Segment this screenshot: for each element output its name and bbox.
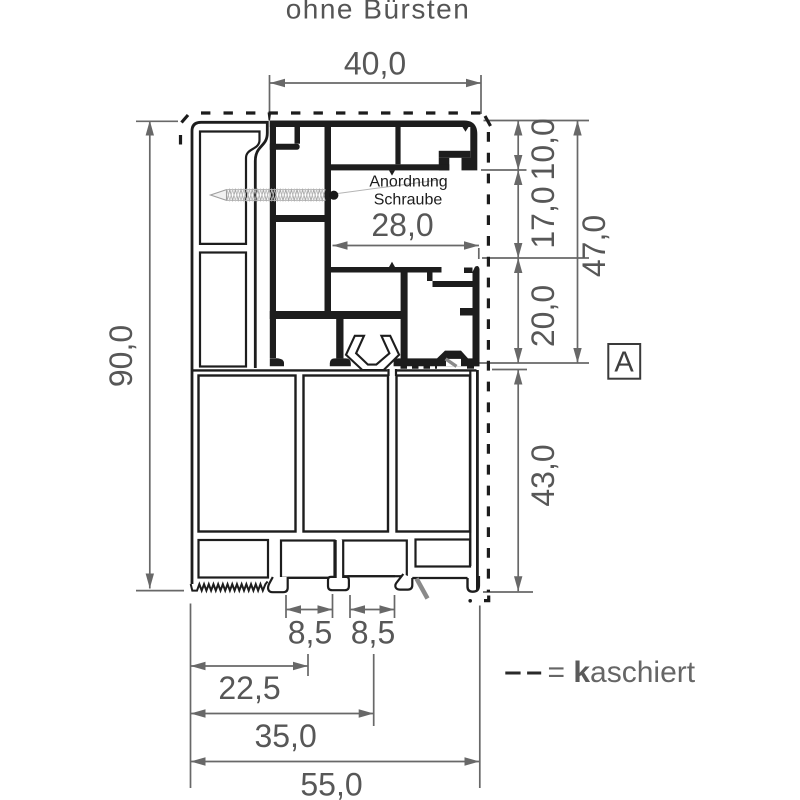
svg-text:55,0: 55,0 — [300, 767, 362, 800]
svg-text:43,0: 43,0 — [525, 444, 561, 506]
svg-text:ohne Bürsten: ohne Bürsten — [286, 0, 471, 25]
svg-text:28,0: 28,0 — [371, 207, 433, 243]
svg-text:8,5: 8,5 — [351, 615, 395, 651]
svg-text:20,0: 20,0 — [525, 285, 561, 347]
svg-text:90,0: 90,0 — [103, 325, 139, 387]
svg-text:10,0: 10,0 — [525, 118, 561, 180]
svg-text:Schraube: Schraube — [374, 192, 443, 209]
svg-text:A: A — [614, 347, 634, 379]
svg-text:Anordnung: Anordnung — [369, 174, 447, 191]
svg-text:17,0: 17,0 — [525, 186, 561, 248]
svg-text:40,0: 40,0 — [344, 46, 406, 82]
svg-text:35,0: 35,0 — [254, 718, 316, 754]
svg-text:8,5: 8,5 — [288, 615, 332, 651]
svg-text:47,0: 47,0 — [576, 215, 612, 277]
svg-text:22,5: 22,5 — [218, 670, 280, 706]
svg-text:= kaschiert: = kaschiert — [548, 656, 696, 689]
